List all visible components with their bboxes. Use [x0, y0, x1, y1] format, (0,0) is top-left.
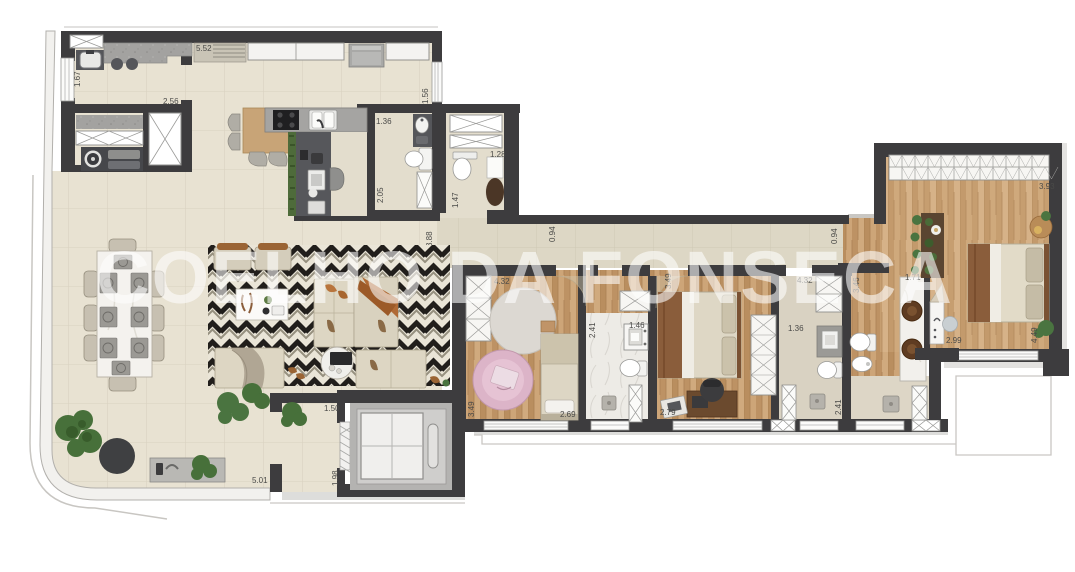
svg-text:5.01: 5.01 — [252, 476, 268, 485]
svg-text:2.99: 2.99 — [946, 336, 962, 345]
svg-text:1.36: 1.36 — [376, 117, 392, 126]
svg-text:4.49: 4.49 — [1030, 327, 1039, 343]
svg-text:2.05: 2.05 — [376, 187, 385, 203]
svg-text:1.98: 1.98 — [331, 470, 340, 486]
svg-text:1.46: 1.46 — [629, 321, 645, 330]
svg-text:1.56: 1.56 — [421, 88, 430, 104]
svg-text:5.52: 5.52 — [196, 44, 212, 53]
svg-text:2.56: 2.56 — [163, 97, 179, 106]
svg-text:1.67: 1.67 — [73, 71, 82, 87]
svg-text:1.50: 1.50 — [324, 404, 340, 413]
svg-text:2.79: 2.79 — [660, 408, 676, 417]
svg-text:2.41: 2.41 — [834, 399, 843, 415]
svg-text:2.41: 2.41 — [588, 322, 597, 338]
svg-text:1.36: 1.36 — [788, 324, 804, 333]
svg-text:1.28: 1.28 — [490, 150, 506, 159]
svg-text:1.47: 1.47 — [451, 192, 460, 208]
svg-text:2.69: 2.69 — [560, 410, 576, 419]
svg-text:COELHO DA FONSECA: COELHO DA FONSECA — [96, 236, 954, 319]
svg-text:3.93: 3.93 — [1039, 182, 1055, 191]
svg-text:3.49: 3.49 — [467, 401, 476, 417]
